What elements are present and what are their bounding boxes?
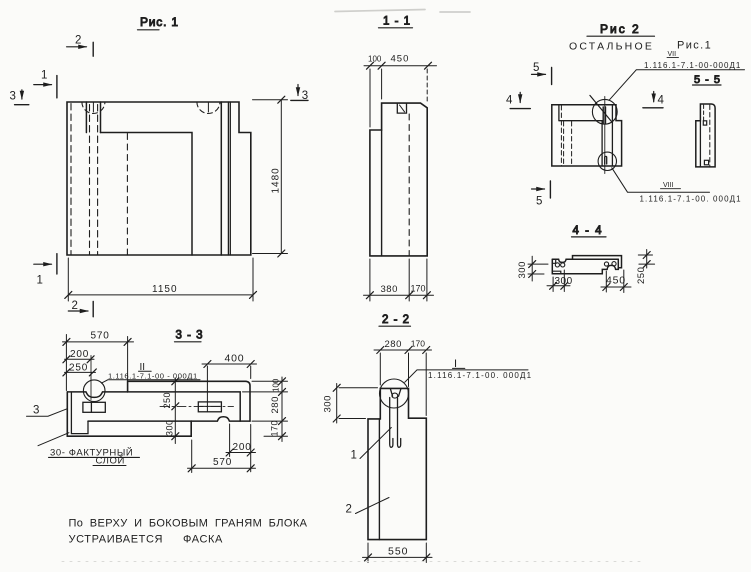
svg-text:4: 4 bbox=[506, 95, 513, 107]
svg-text:250: 250 bbox=[162, 392, 172, 409]
svg-text:По ВЕРХУ И БОКОВЫМ ГРАНЯМ БЛОК: По ВЕРХУ И БОКОВЫМ ГРАНЯМ БЛОКА bbox=[69, 518, 308, 530]
svg-text:450: 450 bbox=[606, 275, 626, 287]
svg-text:170: 170 bbox=[411, 284, 426, 294]
svg-text:4: 4 bbox=[658, 95, 665, 107]
svg-text:1: 1 bbox=[351, 450, 357, 462]
svg-text:300: 300 bbox=[555, 276, 573, 287]
svg-text:2 - 2: 2 - 2 bbox=[382, 314, 410, 326]
svg-text:5 - 5: 5 - 5 bbox=[694, 74, 721, 86]
svg-text:100: 100 bbox=[272, 378, 281, 392]
svg-text:4 - 4: 4 - 4 bbox=[573, 225, 604, 237]
svg-text:2: 2 bbox=[72, 300, 78, 312]
svg-text:250: 250 bbox=[69, 362, 88, 373]
svg-text:1.116.1-7.1-00 - 000Д1: 1.116.1-7.1-00 - 000Д1 bbox=[108, 372, 198, 381]
svg-text:380: 380 bbox=[381, 284, 398, 295]
svg-text:1.116.1-7.1-00. 000Д1: 1.116.1-7.1-00. 000Д1 bbox=[640, 195, 742, 204]
svg-text:100: 100 bbox=[368, 55, 382, 64]
svg-text:1.116.1-7.1-00-000Д1: 1.116.1-7.1-00-000Д1 bbox=[644, 61, 741, 70]
svg-text:1150: 1150 bbox=[152, 284, 178, 295]
svg-text:570: 570 bbox=[91, 331, 110, 342]
svg-text:Рис. 1: Рис. 1 bbox=[140, 15, 179, 29]
svg-text:550: 550 bbox=[388, 546, 409, 558]
svg-text:УСТРАИВАЕТСЯ ФАСКА: УСТРАИВАЕТСЯ ФАСКА bbox=[69, 534, 224, 546]
svg-text:3: 3 bbox=[10, 91, 16, 103]
svg-text:200: 200 bbox=[70, 349, 89, 360]
svg-text:Рис 2: Рис 2 bbox=[600, 22, 641, 36]
svg-text:2: 2 bbox=[346, 504, 352, 516]
svg-text:170: 170 bbox=[270, 420, 280, 437]
svg-text:1: 1 bbox=[41, 70, 47, 82]
svg-text:280: 280 bbox=[270, 396, 281, 413]
svg-text:VIII: VIII bbox=[663, 182, 674, 189]
svg-text:1 - 1: 1 - 1 bbox=[383, 16, 411, 28]
svg-text:1: 1 bbox=[37, 275, 43, 287]
svg-text:3: 3 bbox=[302, 90, 308, 102]
svg-text:2: 2 bbox=[75, 35, 81, 47]
svg-text:СЛОЙ: СЛОЙ bbox=[96, 454, 125, 466]
svg-text:3: 3 bbox=[33, 405, 39, 417]
svg-text:250: 250 bbox=[636, 267, 647, 284]
svg-text:300: 300 bbox=[323, 395, 334, 412]
svg-text:400: 400 bbox=[225, 353, 245, 365]
svg-text:5: 5 bbox=[536, 196, 542, 208]
svg-text:Рис.1: Рис.1 bbox=[677, 40, 712, 52]
svg-text:450: 450 bbox=[391, 54, 410, 65]
svg-text:300: 300 bbox=[517, 261, 528, 278]
svg-text:170: 170 bbox=[411, 339, 425, 349]
svg-text:5: 5 bbox=[533, 62, 539, 74]
svg-text:3 - 3: 3 - 3 bbox=[176, 330, 204, 342]
svg-text:280: 280 bbox=[385, 339, 402, 350]
svg-text:200: 200 bbox=[233, 442, 252, 453]
svg-text:ОСТАЛЬНОЕ: ОСТАЛЬНОЕ bbox=[569, 41, 654, 53]
svg-text:570: 570 bbox=[213, 457, 232, 468]
svg-text:300: 300 bbox=[164, 419, 174, 436]
svg-text:1.116.1-7.1-00. 000Д1: 1.116.1-7.1-00. 000Д1 bbox=[428, 371, 532, 380]
svg-text:1480: 1480 bbox=[271, 167, 282, 193]
